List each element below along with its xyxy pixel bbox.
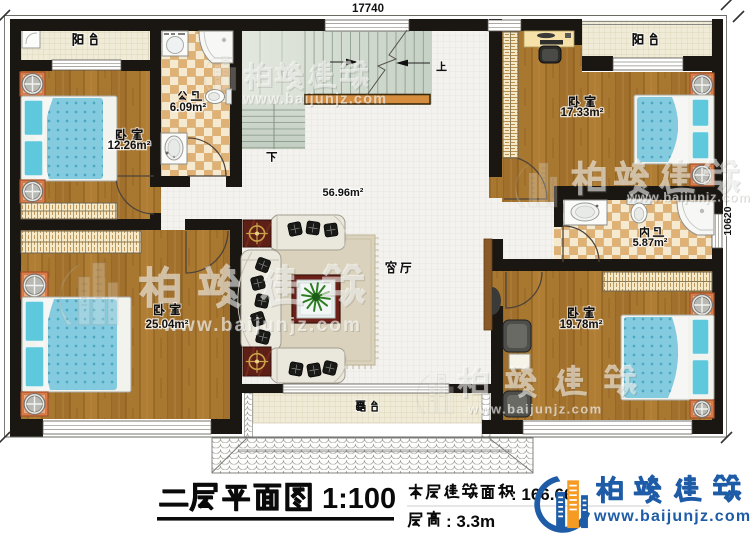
svg-text:5.87m²: 5.87m² bbox=[633, 237, 668, 249]
svg-text:www.baijunjz.com: www.baijunjz.com bbox=[593, 508, 750, 525]
svg-text:: 3.3m: : 3.3m bbox=[446, 512, 495, 531]
svg-text:www.baijunjz.com: www.baijunjz.com bbox=[242, 92, 387, 108]
svg-text:www.baijunjz.com: www.baijunjz.com bbox=[162, 315, 362, 336]
svg-text:17740: 17740 bbox=[352, 3, 384, 15]
svg-text:www.baijunjz.com: www.baijunjz.com bbox=[467, 401, 603, 416]
svg-text:17.33m²: 17.33m² bbox=[561, 107, 604, 119]
svg-text:www.baijunjz.com: www.baijunjz.com bbox=[626, 189, 750, 204]
svg-text:25.04m²: 25.04m² bbox=[146, 319, 189, 331]
svg-text:19.78m²: 19.78m² bbox=[560, 319, 603, 331]
svg-text:1:100: 1:100 bbox=[322, 483, 396, 515]
svg-text:12.26m²: 12.26m² bbox=[108, 140, 151, 152]
svg-text:10620: 10620 bbox=[722, 206, 734, 235]
svg-text:56.96m²: 56.96m² bbox=[323, 187, 364, 199]
svg-text:6.09m²: 6.09m² bbox=[170, 102, 207, 114]
